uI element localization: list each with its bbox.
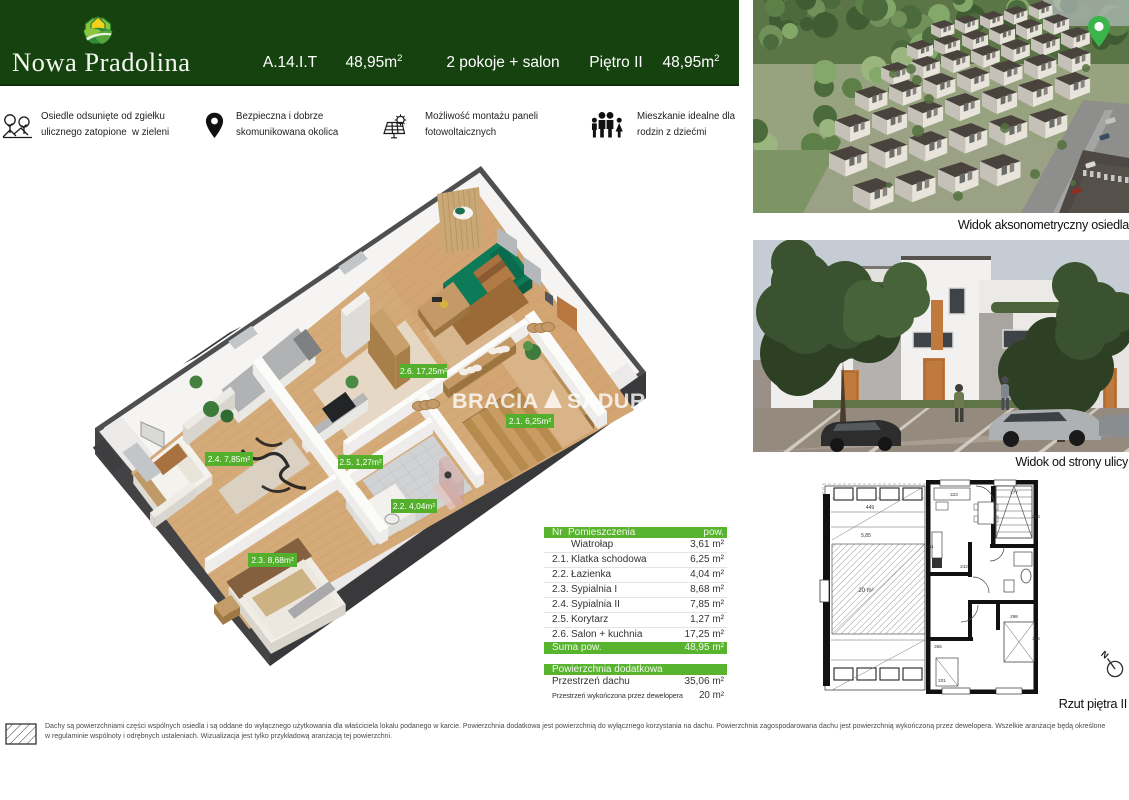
svg-text:BRACIA: BRACIA — [452, 389, 539, 413]
svg-text:315: 315 — [1032, 636, 1040, 641]
svg-text:N: N — [1099, 649, 1110, 661]
svg-text:242: 242 — [960, 564, 968, 569]
svg-text:449: 449 — [866, 505, 875, 511]
svg-text:206: 206 — [1032, 514, 1040, 519]
svg-text:20 m²: 20 m² — [858, 588, 873, 594]
svg-text:SADURS: SADURS — [567, 389, 661, 413]
svg-text:365: 365 — [934, 644, 942, 649]
svg-text:298: 298 — [1010, 614, 1018, 619]
svg-text:323: 323 — [950, 492, 958, 497]
svg-text:261: 261 — [926, 544, 934, 549]
svg-text:177: 177 — [1010, 490, 1018, 495]
svg-text:5,85: 5,85 — [861, 533, 871, 539]
svg-text:201: 201 — [938, 678, 946, 683]
